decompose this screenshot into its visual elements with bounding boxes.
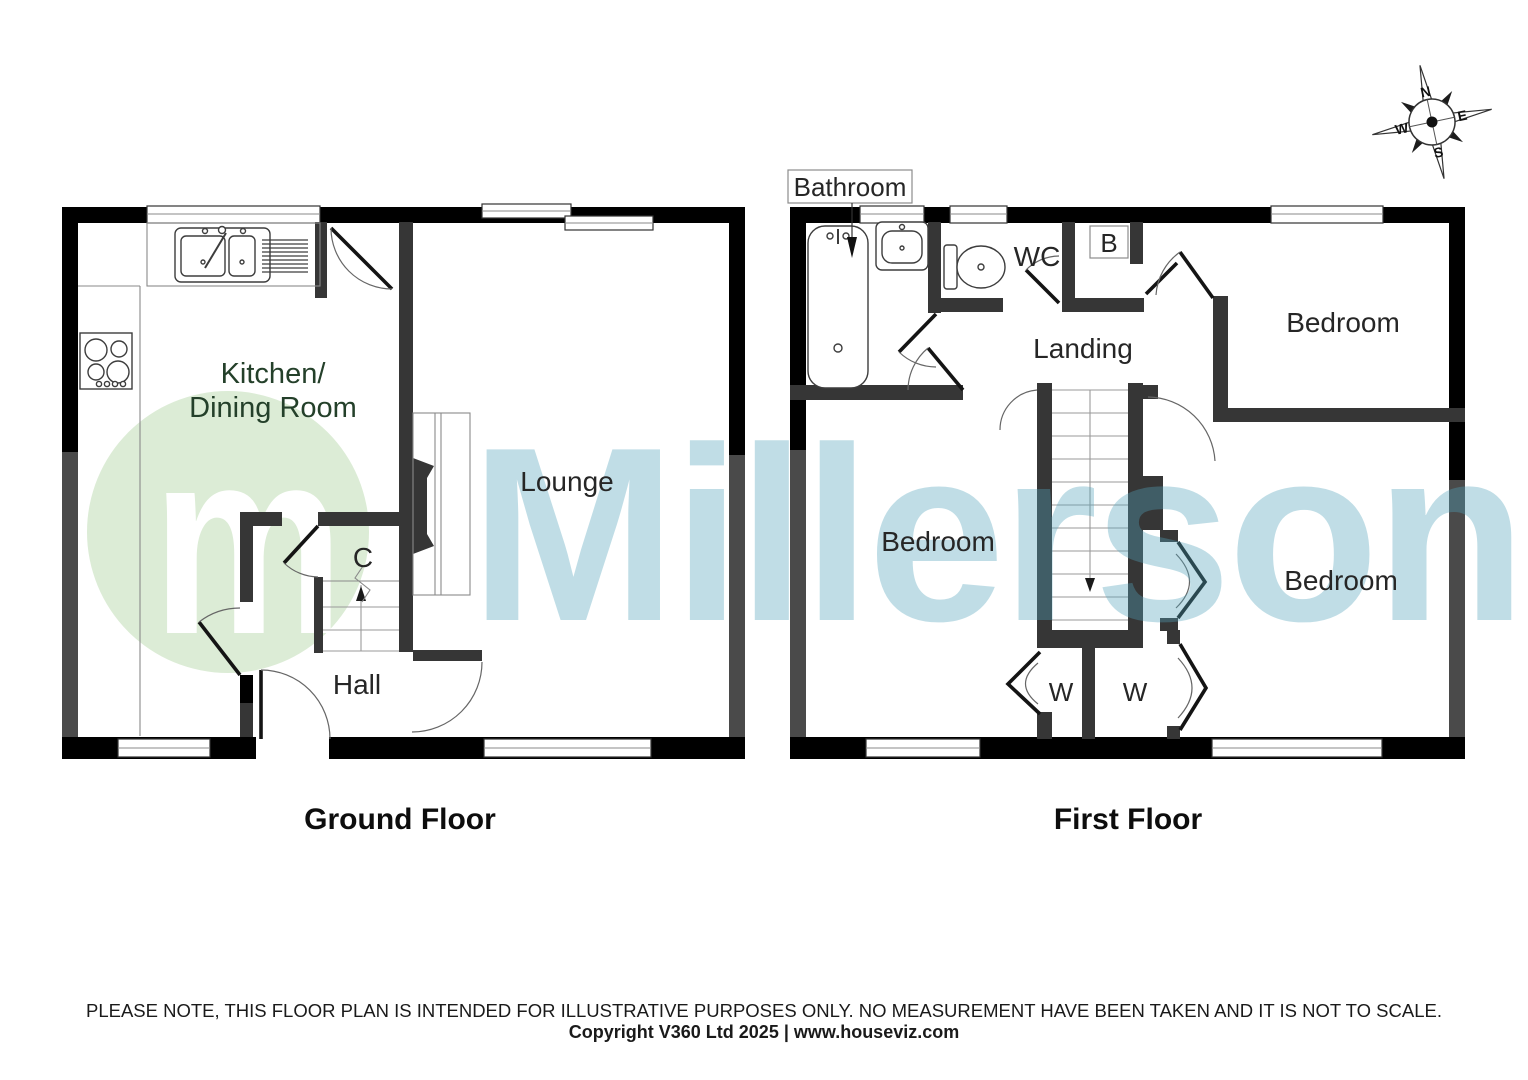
compass-letter-n: N — [1419, 83, 1432, 101]
room-label-cupboard: C — [353, 542, 373, 573]
compass-rose-icon: N E S W — [1360, 53, 1503, 192]
compass-letter-w: W — [1394, 119, 1411, 138]
room-label-lounge: Lounge — [520, 466, 613, 497]
room-label-hall: Hall — [333, 669, 381, 700]
compass-letter-e: E — [1456, 107, 1468, 125]
room-label-wc: WC — [1014, 241, 1061, 272]
room-label-bedroom-top: Bedroom — [1286, 307, 1400, 338]
brand-watermark: Millerson — [470, 395, 1523, 673]
room-label-boiler: B — [1100, 228, 1117, 258]
room-label-wardrobe-left: W — [1049, 677, 1074, 707]
floorplan-image: m — [0, 0, 1528, 1080]
hob-icon — [80, 333, 132, 389]
room-label-bedroom-right: Bedroom — [1284, 565, 1398, 596]
room-label-bedroom-left: Bedroom — [881, 526, 995, 557]
room-label-landing: Landing — [1033, 333, 1133, 364]
disclaimer-text: PLEASE NOTE, THIS FLOOR PLAN IS INTENDED… — [86, 1000, 1442, 1021]
front-door-opening — [256, 735, 329, 761]
copyright-text: Copyright V360 Ltd 2025 | www.houseviz.c… — [569, 1022, 959, 1042]
room-label-wardrobe-right: W — [1123, 677, 1148, 707]
basin-icon — [876, 222, 928, 270]
room-label-bathroom: Bathroom — [794, 172, 907, 202]
ground-floor-caption: Ground Floor — [304, 803, 496, 836]
toilet-icon — [944, 245, 1005, 289]
first-floor-caption: First Floor — [1054, 803, 1203, 836]
room-label-kitchen-line2: Dining Room — [189, 392, 357, 424]
bath-icon — [808, 226, 868, 388]
room-label-kitchen-line1: Kitchen/ — [221, 358, 327, 390]
millerson-logo-icon: m — [87, 391, 369, 690]
floorplan-page: m — [0, 0, 1528, 1080]
kitchen-sink-icon — [147, 223, 320, 286]
compass-letter-s: S — [1432, 144, 1444, 162]
